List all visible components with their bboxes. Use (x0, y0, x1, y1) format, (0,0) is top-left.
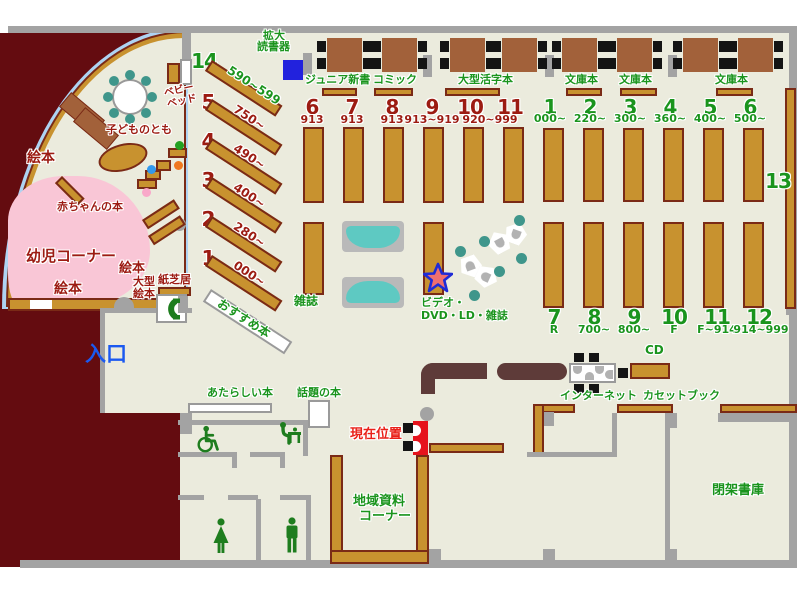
pillar (665, 549, 677, 562)
chair (618, 368, 628, 378)
star-icon (423, 262, 453, 294)
wall (612, 413, 617, 457)
chair (719, 58, 728, 69)
wall (280, 452, 285, 468)
junior-shinsho-label: ジュニア新書 (305, 74, 370, 87)
shelf (617, 404, 673, 413)
shelf-range: 800~ (612, 324, 656, 337)
stool (514, 215, 525, 226)
shelf (703, 222, 724, 308)
topic-books-label: 話題の本 (297, 387, 341, 400)
wall (306, 495, 311, 560)
shelf (583, 222, 604, 308)
shelf-range: 300~ (610, 113, 650, 126)
shelf (720, 404, 797, 413)
shelf (623, 222, 644, 308)
stool-orange (174, 161, 183, 170)
stool-blue (147, 165, 156, 174)
chair (673, 41, 682, 52)
shelf (423, 127, 444, 203)
exterior-block-bottom-left (103, 413, 180, 567)
topic-books-shelf (308, 400, 330, 428)
cd-shelf (630, 363, 670, 379)
chair (589, 353, 599, 362)
chair (372, 58, 381, 69)
stool (455, 246, 466, 257)
shelf (743, 128, 764, 202)
shelf-range: 000~ (530, 113, 570, 126)
wall-top (8, 26, 797, 33)
magazine-shelf (303, 222, 324, 295)
stool (479, 236, 490, 247)
chair (728, 41, 737, 52)
chair (552, 58, 561, 69)
closed-stacks-label: 閉架書庫 (712, 484, 764, 499)
wall (250, 452, 284, 457)
shelf-range: 360~ (650, 113, 690, 126)
shelf-range: 700~ (572, 324, 616, 337)
shelf (543, 128, 564, 202)
reading-table (382, 38, 417, 72)
chair (418, 41, 427, 52)
kids-door-gap (30, 300, 52, 309)
shelf-range: 400~ (690, 113, 730, 126)
chair (728, 58, 737, 69)
pillar (429, 549, 441, 562)
chair (552, 41, 561, 52)
shelf-range: 920~999 (456, 114, 524, 127)
shelf (663, 128, 684, 202)
shelf (383, 127, 404, 203)
cd-label: CD (645, 344, 664, 358)
chair (492, 58, 501, 69)
magnifier-label-2: 読書器 (257, 41, 290, 54)
kids-chair (125, 70, 135, 80)
wall (256, 499, 261, 560)
internet-label: インターネット (560, 390, 637, 403)
cassette-label: カセットブック (643, 390, 720, 403)
comic-label: コミック (373, 74, 417, 87)
baby-bed-shelf (167, 63, 180, 84)
chair (440, 41, 449, 52)
chair (774, 41, 783, 52)
reading-table (617, 38, 652, 72)
baby-books-label: 赤ちゃんの本 (57, 201, 123, 214)
pillar (543, 549, 555, 562)
chair (372, 41, 381, 52)
library-floor-map: 拡大 読書器 ジュニア新書 コミック 大型活字本 文庫本 文庫本 文庫本 14 … (0, 0, 800, 600)
wall (527, 452, 617, 457)
baby-bed (180, 59, 192, 85)
reading-table (450, 38, 485, 72)
woman-icon (210, 518, 232, 554)
stool (516, 253, 527, 264)
stool (494, 266, 505, 277)
chair (653, 41, 662, 52)
stool-green (175, 141, 184, 150)
ehon-label: 絵本 (54, 281, 82, 297)
shelf (343, 127, 364, 203)
large-ehon-label-2: 絵本 (133, 288, 155, 301)
man-icon (281, 517, 303, 554)
pillar (303, 53, 312, 75)
video-label: ビデオ・ (421, 297, 465, 310)
seat (605, 370, 613, 379)
wall-shelf-13 (785, 88, 796, 309)
local-corner-shelf (330, 550, 429, 564)
shelf (429, 443, 504, 453)
chair (538, 41, 547, 52)
pillar (665, 413, 677, 428)
chair (607, 41, 616, 52)
baby-change-icon (276, 421, 304, 451)
wall (178, 495, 204, 500)
chair (598, 41, 607, 52)
chair (607, 58, 616, 69)
kids-chair (147, 92, 157, 102)
shelf-range: 913 (292, 114, 332, 127)
stool-pink (142, 188, 151, 197)
bunko-label: 文庫本 (619, 74, 652, 87)
shelf-range: F (652, 324, 696, 337)
kodomo-no-tomo-label: 子どものとも (106, 124, 172, 137)
pillar (180, 420, 192, 434)
stool (469, 290, 480, 301)
counter-leg (421, 363, 435, 394)
chair (719, 41, 728, 52)
wall (665, 427, 670, 555)
chair (598, 58, 607, 69)
chair (317, 58, 326, 69)
reading-table (502, 38, 537, 72)
current-location-label: 現在位置 (350, 428, 402, 443)
chair (774, 58, 783, 69)
shelf-range: 500~ (730, 113, 770, 126)
counter-capsule (497, 363, 567, 380)
shelf-number: 13 (763, 170, 793, 193)
kids-chair (109, 108, 119, 118)
shelf (623, 128, 644, 202)
local-materials-label: 地域資料 (353, 495, 405, 510)
chair (574, 353, 584, 362)
chair (363, 41, 372, 52)
reading-table (683, 38, 718, 72)
local-materials-label-2: コーナー (359, 510, 411, 525)
kids-chair (141, 76, 151, 86)
shelf (533, 404, 544, 455)
new-books-label: あたらしい本 (207, 387, 273, 400)
reading-table (327, 38, 362, 72)
shelf (503, 127, 524, 203)
pillar (544, 412, 554, 426)
bunko-label: 文庫本 (565, 74, 598, 87)
magazines-label: 雑誌 (294, 295, 318, 309)
chair (538, 58, 547, 69)
local-corner-shelf (416, 455, 429, 564)
chair (363, 58, 372, 69)
chair (317, 41, 326, 52)
seat (585, 372, 594, 380)
shelf-range: R (532, 324, 576, 337)
wall (718, 413, 797, 422)
shelf (303, 127, 324, 203)
local-corner-shelf (330, 455, 343, 564)
shelf-range: 913 (332, 114, 372, 127)
new-books-shelf (188, 403, 272, 413)
chair (418, 58, 427, 69)
kids-corner-label: 幼児コーナー (26, 248, 116, 265)
reading-table (738, 38, 773, 72)
wall (232, 452, 237, 468)
video-label-2: DVD・LD・雑誌 (421, 310, 508, 323)
sofa-curved (346, 281, 400, 303)
shelf (583, 128, 604, 202)
chair (673, 58, 682, 69)
shelf (543, 222, 564, 308)
shelf (703, 128, 724, 202)
magnifier-device-icon (283, 60, 303, 80)
shelf (463, 127, 484, 203)
chair (440, 58, 449, 69)
shelf (743, 222, 764, 308)
shelf-range: 220~ (570, 113, 610, 126)
shelf (663, 222, 684, 308)
shelf-range: 914~999 (733, 324, 789, 337)
kamishibai-label: 紙芝居 (158, 274, 191, 287)
reading-table (562, 38, 597, 72)
chair (653, 58, 662, 69)
chair (492, 41, 501, 52)
entrance-label: 入口 (85, 342, 127, 366)
wheelchair-icon (194, 424, 224, 454)
kids-chair (103, 92, 113, 102)
phone-icon (159, 297, 183, 321)
chair (403, 423, 413, 433)
ehon-label: 絵本 (27, 150, 55, 166)
kids-chair (109, 76, 119, 86)
chair (403, 441, 413, 451)
bunko-label: 文庫本 (715, 74, 748, 87)
wall (228, 495, 258, 500)
pillar-round (420, 407, 434, 421)
kids-chair (141, 108, 151, 118)
large-print-label: 大型活字本 (458, 74, 513, 87)
